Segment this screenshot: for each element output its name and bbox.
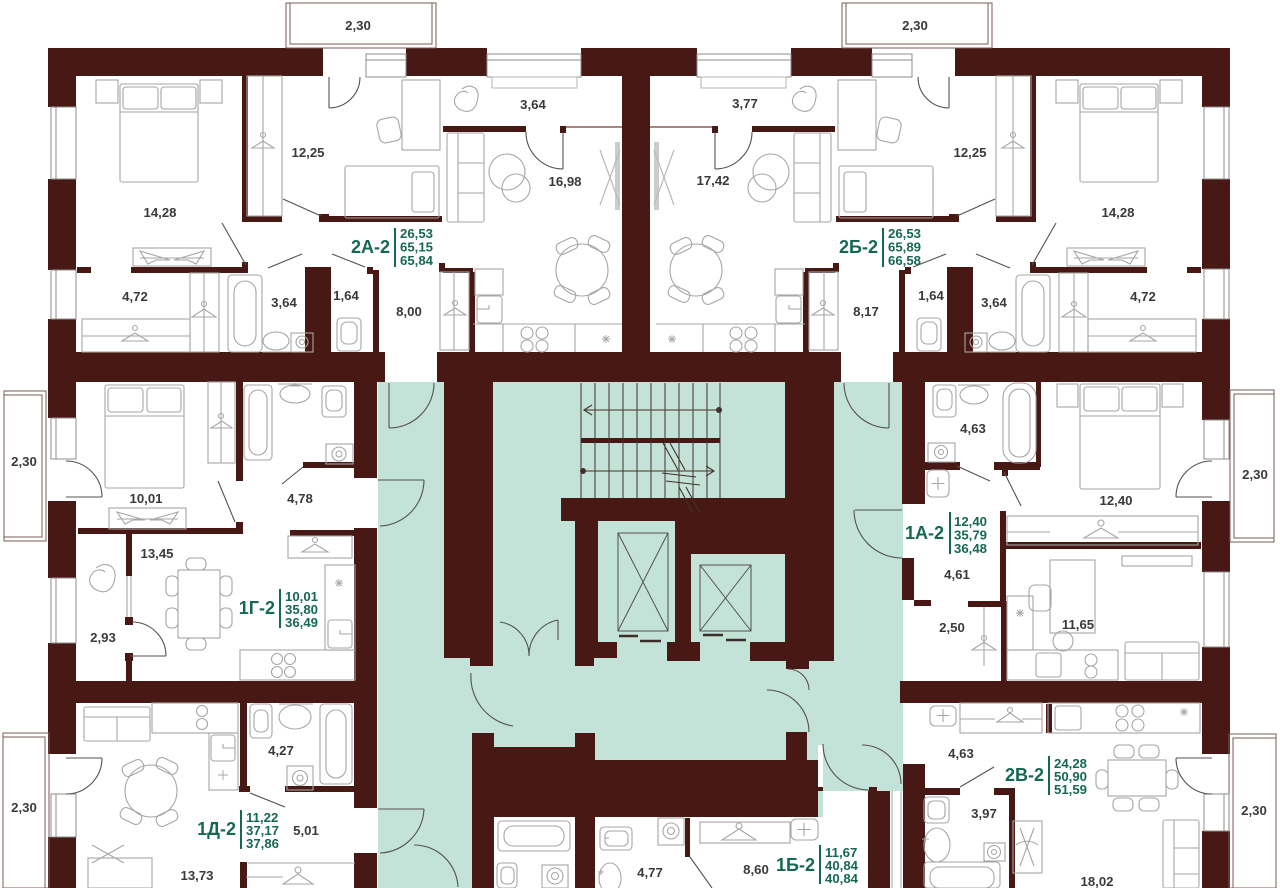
svg-text:40,84: 40,84 (825, 871, 859, 886)
svg-text:11,65: 11,65 (1062, 617, 1094, 632)
svg-text:4,78: 4,78 (287, 491, 313, 506)
svg-text:2,93: 2,93 (90, 630, 116, 645)
svg-text:2В-2: 2В-2 (1005, 765, 1044, 785)
svg-text:4,72: 4,72 (1130, 289, 1156, 304)
svg-text:2,30: 2,30 (11, 454, 37, 469)
svg-text:12,25: 12,25 (291, 145, 324, 160)
svg-text:3,77: 3,77 (732, 96, 758, 111)
svg-text:3,97: 3,97 (971, 806, 997, 821)
svg-text:2Б-2: 2Б-2 (839, 237, 878, 257)
svg-text:4,27: 4,27 (268, 743, 294, 758)
svg-text:8,60: 8,60 (743, 862, 769, 877)
svg-text:14,28: 14,28 (1101, 205, 1134, 220)
svg-text:2,30: 2,30 (1242, 467, 1268, 482)
svg-text:8,17: 8,17 (853, 304, 879, 319)
svg-text:36,48: 36,48 (954, 541, 987, 556)
svg-text:3,64: 3,64 (520, 97, 546, 112)
svg-text:51,59: 51,59 (1054, 782, 1087, 797)
svg-text:8,00: 8,00 (396, 304, 422, 319)
svg-text:12,40: 12,40 (1099, 493, 1132, 508)
svg-text:65,84: 65,84 (400, 253, 434, 268)
svg-text:1,64: 1,64 (918, 288, 944, 303)
svg-text:10,01: 10,01 (129, 491, 162, 506)
svg-text:1А-2: 1А-2 (905, 523, 944, 543)
svg-text:4,77: 4,77 (637, 865, 663, 880)
svg-text:1,64: 1,64 (333, 288, 359, 303)
svg-text:1Д-2: 1Д-2 (197, 819, 236, 839)
svg-text:36,49: 36,49 (285, 615, 318, 630)
svg-text:13,73: 13,73 (180, 868, 213, 883)
svg-text:2,30: 2,30 (1241, 803, 1267, 818)
svg-text:3,64: 3,64 (271, 295, 297, 310)
svg-text:13,45: 13,45 (140, 546, 173, 561)
svg-text:66,58: 66,58 (888, 253, 921, 268)
svg-text:16,98: 16,98 (548, 174, 581, 189)
svg-text:4,72: 4,72 (122, 289, 148, 304)
svg-text:3,64: 3,64 (981, 295, 1007, 310)
svg-text:37,86: 37,86 (246, 836, 279, 851)
svg-text:17,42: 17,42 (696, 173, 729, 188)
svg-text:4,63: 4,63 (960, 421, 986, 436)
svg-text:12,25: 12,25 (953, 145, 986, 160)
svg-text:2,30: 2,30 (902, 18, 928, 33)
svg-text:4,63: 4,63 (948, 746, 974, 761)
svg-text:2,30: 2,30 (11, 800, 37, 815)
svg-text:14,28: 14,28 (143, 205, 176, 220)
svg-text:1Б-2: 1Б-2 (776, 855, 815, 875)
svg-text:5,01: 5,01 (293, 823, 319, 838)
svg-text:2,30: 2,30 (345, 18, 371, 33)
svg-text:1Г-2: 1Г-2 (239, 598, 275, 618)
svg-text:2,50: 2,50 (939, 620, 965, 635)
svg-text:18,02: 18,02 (1080, 874, 1113, 888)
svg-text:2А-2: 2А-2 (351, 237, 390, 257)
svg-text:4,61: 4,61 (944, 567, 970, 582)
